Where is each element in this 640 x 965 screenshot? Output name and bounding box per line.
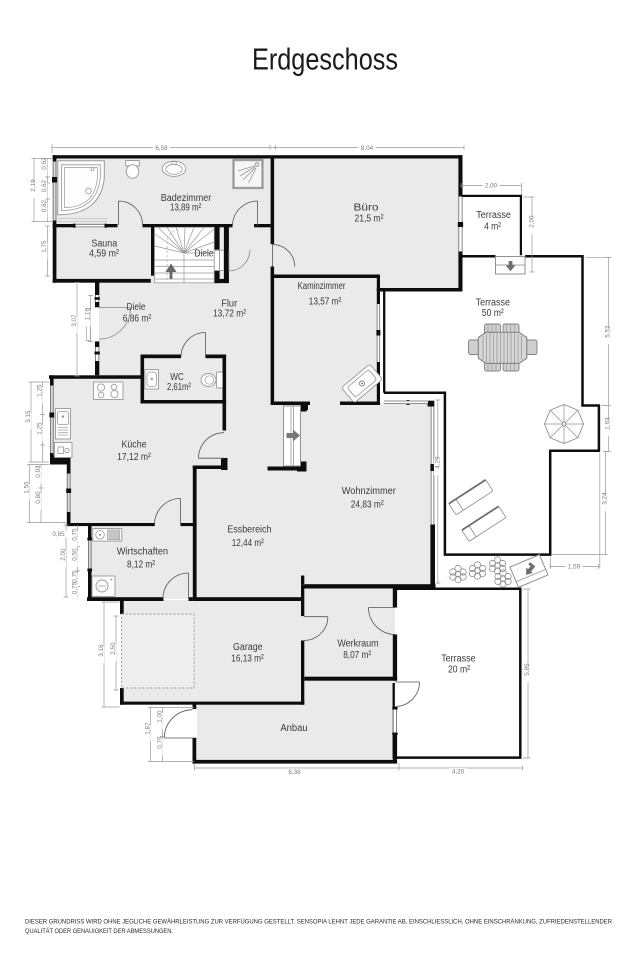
svg-text:6,86 m²: 6,86 m² — [123, 314, 152, 325]
svg-text:0,75: 0,75 — [72, 570, 79, 583]
svg-text:24,83 m²: 24,83 m² — [351, 499, 385, 510]
svg-text:2,50: 2,50 — [110, 642, 117, 655]
svg-text:2,00: 2,00 — [485, 182, 498, 189]
svg-text:0,62: 0,62 — [41, 157, 48, 170]
svg-text:0,76: 0,76 — [157, 736, 164, 749]
svg-text:13,72 m²: 13,72 m² — [213, 309, 247, 320]
svg-text:Garage: Garage — [233, 642, 263, 653]
svg-text:2,00: 2,00 — [60, 548, 67, 561]
svg-text:13,89 m²: 13,89 m² — [170, 202, 202, 213]
svg-text:0,75: 0,75 — [72, 581, 79, 594]
svg-text:5,52: 5,52 — [604, 325, 611, 338]
svg-text:1,25: 1,25 — [37, 384, 44, 397]
svg-text:17,12 m²: 17,12 m² — [117, 452, 151, 463]
svg-text:20 m²: 20 m² — [448, 665, 471, 676]
svg-text:Kaminzimmer: Kaminzimmer — [298, 281, 347, 292]
svg-text:6,38: 6,38 — [288, 769, 301, 776]
svg-text:Büro: Büro — [354, 203, 380, 214]
svg-text:1,00: 1,00 — [157, 710, 164, 723]
svg-text:3,15: 3,15 — [25, 410, 32, 423]
svg-text:8,04: 8,04 — [361, 145, 374, 152]
svg-text:13,57 m²: 13,57 m² — [309, 297, 342, 308]
svg-text:2,61m²: 2,61m² — [167, 382, 192, 393]
svg-text:DIESER GRUNDRISS WIRD OHNE JEG: DIESER GRUNDRISS WIRD OHNE JEGLICHE GEWÄ… — [25, 918, 612, 926]
svg-text:0,50: 0,50 — [72, 548, 79, 561]
svg-text:0,62: 0,62 — [41, 179, 48, 192]
svg-text:21,5 m²: 21,5 m² — [355, 214, 385, 225]
svg-text:Essbereich: Essbereich — [227, 525, 271, 536]
svg-text:1,59: 1,59 — [568, 564, 581, 571]
svg-text:50 m²: 50 m² — [482, 308, 505, 319]
svg-text:0,62: 0,62 — [41, 199, 48, 212]
svg-text:2,19: 2,19 — [30, 179, 37, 192]
svg-text:5,85: 5,85 — [524, 663, 531, 676]
svg-text:0,93: 0,93 — [35, 465, 42, 478]
svg-text:1,63: 1,63 — [604, 417, 611, 430]
svg-text:QUALITÄT ODER GENAUIGKEIT DER: QUALITÄT ODER GENAUIGKEIT DER ABMESSUNGE… — [25, 927, 173, 935]
svg-text:8,12 m²: 8,12 m² — [127, 560, 156, 571]
svg-text:Wirtschaften: Wirtschaften — [117, 547, 168, 558]
svg-text:Anbau: Anbau — [280, 723, 307, 734]
svg-text:1,10: 1,10 — [85, 307, 92, 320]
svg-text:0,65: 0,65 — [52, 531, 65, 538]
svg-text:3,24: 3,24 — [601, 492, 608, 505]
svg-text:0,75: 0,75 — [72, 528, 79, 541]
svg-text:Diele: Diele — [127, 302, 146, 313]
svg-text:12,44 m²: 12,44 m² — [232, 538, 265, 549]
svg-text:Terrasse: Terrasse — [476, 298, 511, 309]
svg-text:4,29: 4,29 — [435, 456, 442, 469]
svg-text:Wohnzimmer: Wohnzimmer — [342, 486, 397, 497]
svg-text:Erdgeschoss: Erdgeschoss — [252, 42, 398, 77]
svg-text:4 m²: 4 m² — [484, 222, 502, 233]
svg-text:2,00: 2,00 — [528, 215, 535, 228]
svg-text:Küche: Küche — [122, 440, 147, 451]
svg-text:16,13 m²: 16,13 m² — [231, 653, 264, 664]
svg-text:1,75: 1,75 — [41, 240, 48, 253]
svg-text:4,20: 4,20 — [452, 769, 465, 776]
svg-text:Terrasse: Terrasse — [476, 210, 511, 221]
svg-text:8,07 m²: 8,07 m² — [343, 650, 372, 661]
svg-text:6,58: 6,58 — [155, 145, 168, 152]
svg-text:4,59 m²: 4,59 m² — [89, 249, 120, 260]
svg-text:1,25: 1,25 — [37, 422, 44, 435]
svg-text:0,80: 0,80 — [35, 491, 42, 504]
svg-text:1,56: 1,56 — [24, 481, 31, 494]
svg-text:Werkraum: Werkraum — [337, 639, 378, 650]
svg-text:3,16: 3,16 — [98, 644, 105, 657]
svg-text:1,87: 1,87 — [145, 722, 152, 735]
svg-text:Diele: Diele — [195, 249, 214, 260]
svg-text:3,07: 3,07 — [71, 314, 78, 327]
svg-text:Terrasse: Terrasse — [441, 654, 476, 665]
